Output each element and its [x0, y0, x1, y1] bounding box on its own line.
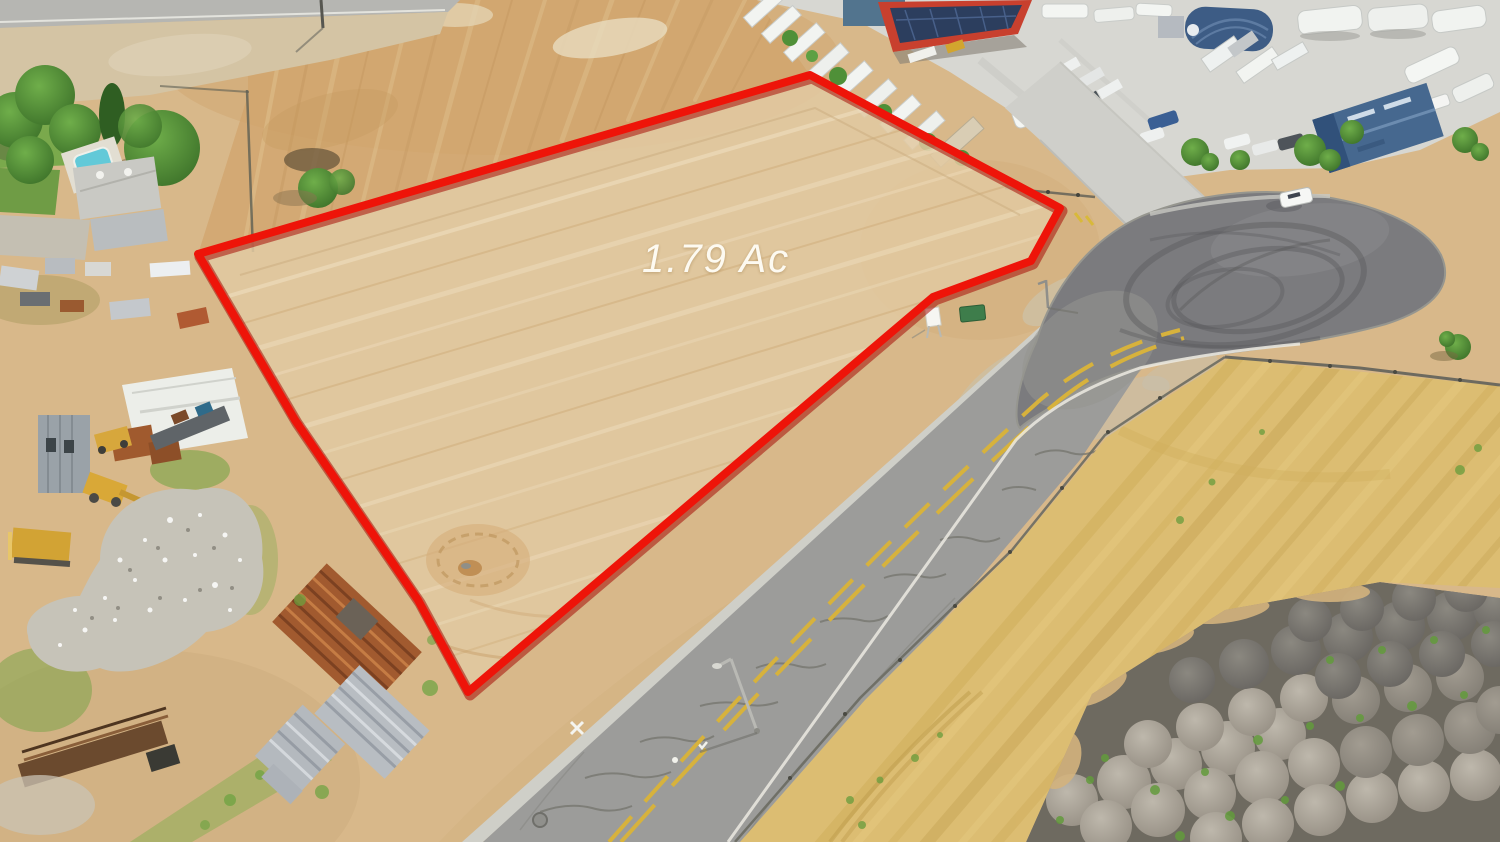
metal-building	[38, 415, 90, 493]
driveway	[0, 215, 90, 260]
aerial-photo-svg	[0, 0, 1500, 842]
aerial-listing-photo: 1.79 Ac	[0, 0, 1500, 842]
utility-pole	[321, 0, 323, 28]
manhole	[533, 813, 547, 827]
green-utility-box	[959, 305, 985, 323]
disturbed-patch	[426, 524, 530, 596]
bulldozer	[10, 528, 71, 564]
tree	[6, 136, 54, 184]
